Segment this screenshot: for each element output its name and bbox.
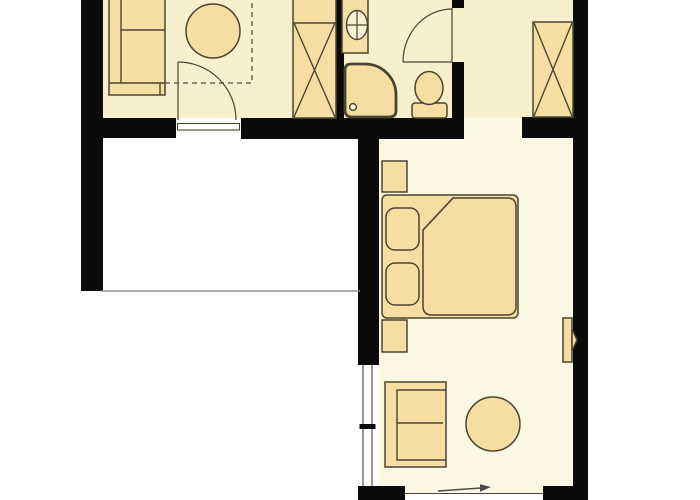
hall-bedroom-opening: [464, 117, 522, 139]
wall-right: [573, 0, 588, 500]
pillow-bottom: [386, 263, 419, 305]
wall-bottom-strip: [241, 118, 464, 139]
wall-hall-bottom: [522, 117, 574, 138]
toilet-bowl: [415, 72, 443, 105]
living-door-opening: [176, 118, 241, 138]
shower-drain: [350, 104, 357, 111]
living-wardrobe: [293, 0, 336, 118]
toilet-tank: [412, 103, 447, 118]
wall-left: [81, 0, 103, 291]
living-round-table: [186, 4, 240, 58]
living-sofa: [109, 0, 165, 95]
wall-bedroom-bottom-left: [358, 486, 405, 500]
bedroom-sofa: [385, 382, 446, 467]
pillow-top: [386, 208, 419, 250]
window-mullion: [360, 424, 376, 429]
floor-plan-drawing: [0, 0, 700, 500]
wall-bedroom-left: [358, 137, 379, 365]
bathroom-door-gap: [452, 7, 464, 63]
wall-tv: [563, 318, 572, 362]
nightstand-bottom: [382, 320, 407, 352]
wall-living-bottom-left: [81, 118, 176, 138]
bedroom-round-table: [466, 397, 520, 451]
hallway: [533, 22, 573, 117]
wall-bedroom-bottom-right: [543, 486, 588, 500]
floor-plan-page: [0, 0, 700, 500]
wall-bath-door-stub: [452, 0, 464, 8]
nightstand-top: [382, 161, 407, 192]
wall-bath-hall: [452, 62, 464, 139]
